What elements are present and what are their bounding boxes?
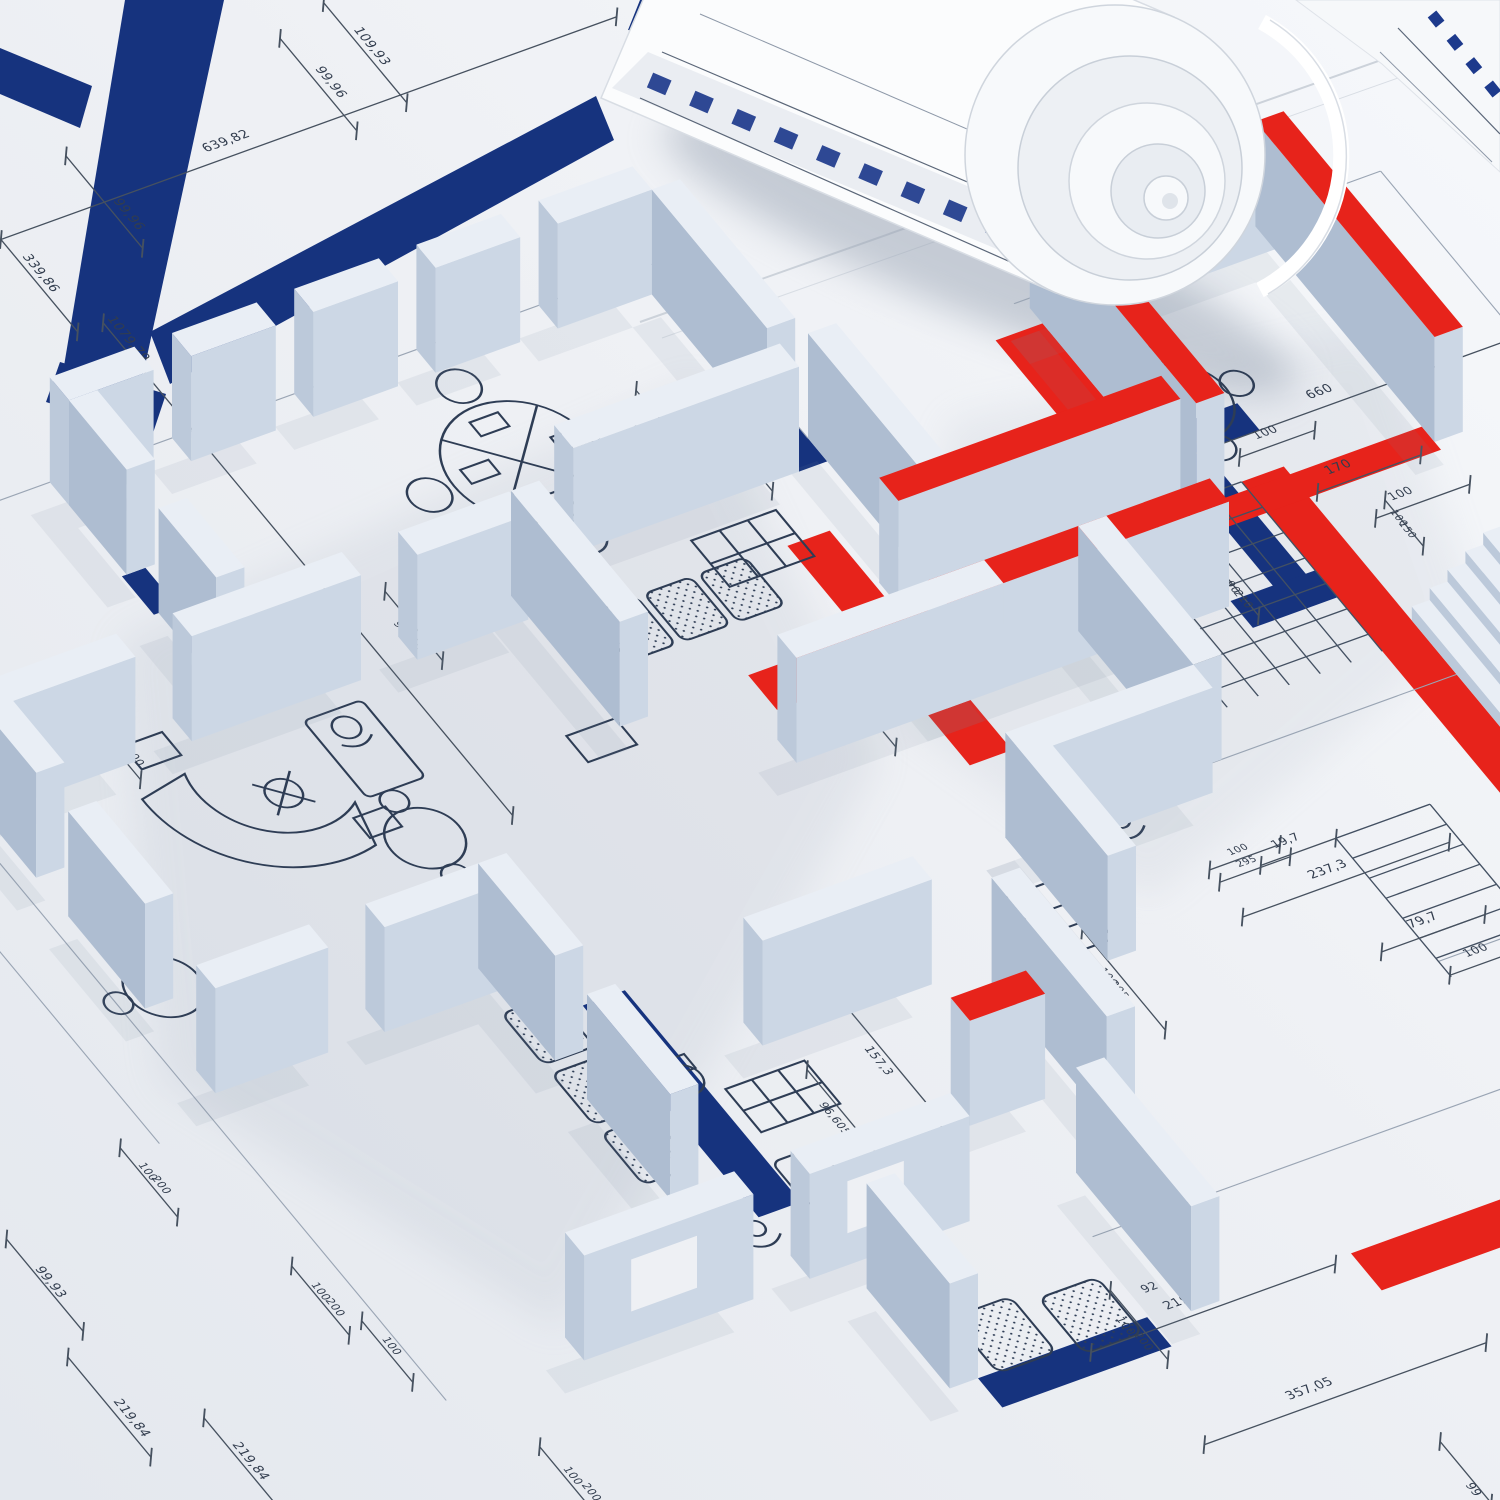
red-top-wall	[951, 971, 1045, 1126]
wall-end-face	[1435, 327, 1463, 442]
wall-end-face	[1108, 846, 1136, 961]
blueprint-3d-render: 99,96339,861079,79639,8299,96109,9366010…	[0, 0, 1500, 1500]
scene-canvas: 99,96339,861079,79639,8299,96109,9366010…	[0, 0, 1500, 1500]
wall-end-face	[620, 612, 648, 727]
wall-end-face	[1191, 1196, 1219, 1311]
wall-end-face	[36, 763, 64, 878]
wall-end-face	[127, 459, 155, 574]
wall-end-face	[670, 1084, 698, 1199]
wall-end-face	[555, 945, 583, 1060]
wall-end-face	[950, 1273, 978, 1388]
wall-end-face	[145, 893, 173, 1008]
